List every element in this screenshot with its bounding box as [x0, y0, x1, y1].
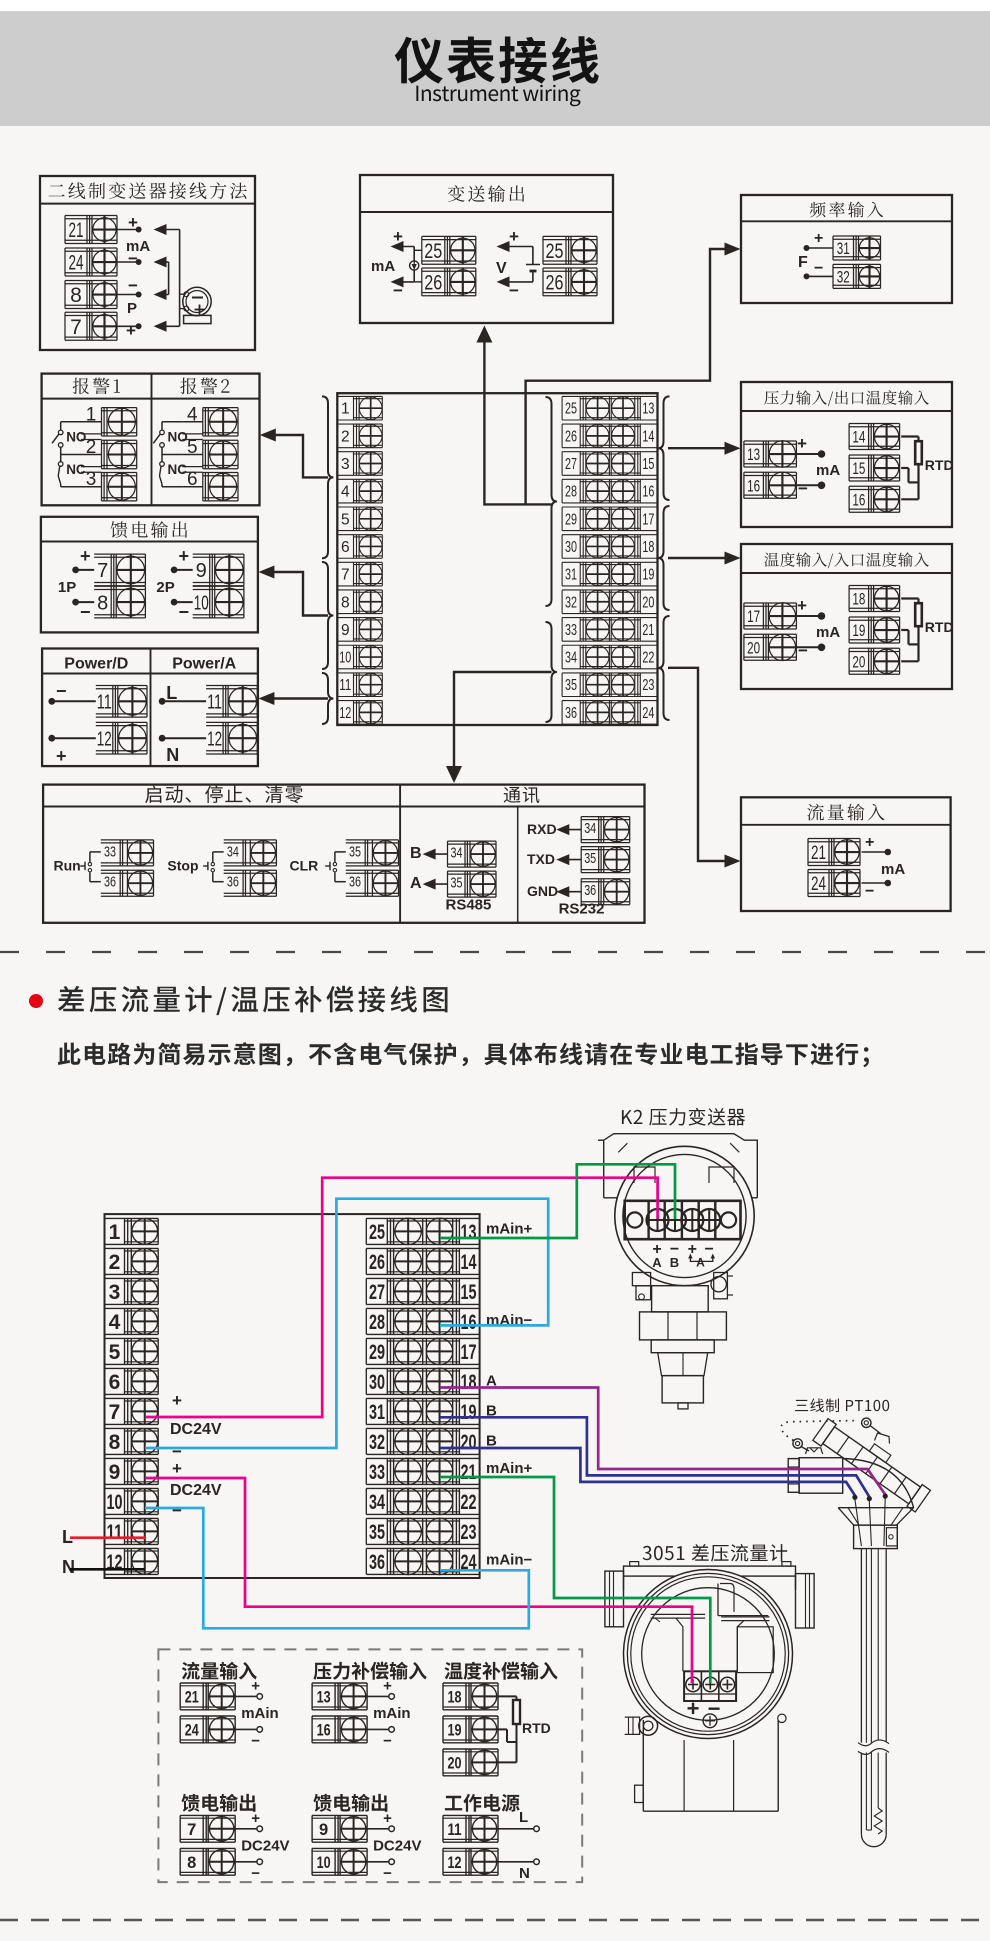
- svg-text:+: +: [172, 1459, 182, 1478]
- svg-text:P: P: [127, 300, 137, 317]
- svg-text:26: 26: [546, 271, 564, 294]
- svg-text:35: 35: [584, 851, 596, 867]
- svg-text:CLR: CLR: [290, 858, 319, 874]
- svg-text:NO: NO: [168, 430, 188, 445]
- svg-text:21: 21: [461, 1461, 477, 1484]
- svg-text:7: 7: [341, 567, 350, 584]
- svg-text:−: −: [56, 681, 67, 701]
- svg-text:+: +: [126, 321, 136, 340]
- svg-text:17: 17: [747, 607, 760, 626]
- svg-text:33: 33: [565, 622, 577, 639]
- svg-text:13: 13: [747, 445, 760, 464]
- svg-text:−: −: [383, 1865, 392, 1882]
- svg-text:N: N: [62, 1557, 75, 1577]
- svg-text:16: 16: [642, 484, 654, 501]
- svg-text:mAin−: mAin−: [486, 1552, 533, 1569]
- svg-text:31: 31: [565, 567, 577, 584]
- svg-text:mAin: mAin: [241, 1705, 279, 1722]
- svg-text:3: 3: [109, 1281, 121, 1304]
- svg-text:+: +: [179, 546, 190, 566]
- svg-text:28: 28: [565, 484, 577, 501]
- svg-text:12: 12: [207, 728, 222, 750]
- svg-text:12: 12: [448, 1854, 462, 1872]
- svg-text:−: −: [798, 479, 808, 498]
- svg-text:GND: GND: [527, 883, 558, 899]
- svg-text:8: 8: [97, 592, 108, 614]
- svg-text:10: 10: [107, 1491, 123, 1514]
- svg-text:16: 16: [747, 476, 760, 495]
- svg-text:23: 23: [461, 1521, 477, 1544]
- svg-text:mA: mA: [371, 258, 395, 275]
- svg-text:+: +: [865, 834, 874, 851]
- svg-text:21: 21: [642, 622, 654, 639]
- svg-text:mAin: mAin: [373, 1705, 411, 1722]
- svg-text:24: 24: [811, 874, 826, 895]
- svg-text:33: 33: [104, 844, 116, 860]
- svg-text:29: 29: [369, 1341, 385, 1364]
- svg-text:8: 8: [109, 1431, 121, 1454]
- svg-text:6: 6: [109, 1371, 121, 1394]
- svg-text:NC: NC: [66, 462, 86, 477]
- svg-text:31: 31: [837, 239, 850, 258]
- svg-text:+: +: [383, 1810, 392, 1827]
- svg-text:2: 2: [86, 437, 97, 458]
- svg-text:14: 14: [852, 428, 865, 447]
- svg-text:8: 8: [341, 594, 350, 611]
- svg-text:L: L: [166, 683, 177, 703]
- svg-text:DC24V: DC24V: [241, 1837, 289, 1854]
- svg-text:20: 20: [852, 652, 865, 671]
- svg-text:B: B: [670, 1255, 679, 1270]
- svg-text:mA: mA: [816, 462, 840, 479]
- svg-text:−: −: [251, 1865, 260, 1882]
- svg-text:DC24V: DC24V: [170, 1421, 222, 1438]
- svg-text:21: 21: [185, 1688, 199, 1706]
- svg-text:DC24V: DC24V: [373, 1837, 421, 1854]
- svg-text:TXD: TXD: [527, 851, 555, 867]
- svg-text:A: A: [410, 875, 422, 892]
- svg-text:21: 21: [811, 843, 826, 864]
- svg-text:12: 12: [339, 705, 351, 722]
- svg-text:15: 15: [852, 459, 865, 478]
- svg-text:NO: NO: [66, 430, 86, 445]
- svg-text:24: 24: [642, 705, 654, 722]
- svg-text:7: 7: [97, 560, 108, 582]
- svg-text:−: −: [80, 602, 91, 622]
- svg-text:mAin+: mAin+: [486, 1460, 533, 1477]
- svg-text:26: 26: [424, 271, 442, 294]
- svg-text:1: 1: [86, 404, 97, 425]
- svg-text:25: 25: [565, 401, 577, 418]
- svg-text:29: 29: [565, 511, 577, 528]
- svg-text:10: 10: [194, 592, 209, 614]
- svg-text:−: −: [251, 1732, 260, 1749]
- svg-text:+: +: [251, 1677, 260, 1694]
- svg-text:11: 11: [97, 692, 112, 714]
- svg-text:A: A: [696, 1256, 705, 1270]
- svg-text:mA: mA: [816, 624, 840, 641]
- svg-text:Power/D: Power/D: [64, 656, 128, 673]
- svg-text:DC24V: DC24V: [170, 1482, 222, 1499]
- svg-text:RTD: RTD: [522, 1720, 551, 1736]
- svg-text:13: 13: [317, 1688, 331, 1706]
- svg-text:14: 14: [461, 1251, 477, 1274]
- svg-text:25: 25: [546, 240, 564, 263]
- svg-text:+: +: [128, 213, 138, 232]
- svg-text:32: 32: [565, 594, 577, 611]
- svg-text:10: 10: [317, 1854, 331, 1872]
- svg-text:9: 9: [196, 560, 207, 582]
- svg-text:+: +: [814, 230, 823, 247]
- svg-text:9: 9: [109, 1461, 121, 1484]
- svg-text:23: 23: [642, 677, 654, 694]
- svg-text:26: 26: [565, 428, 577, 445]
- svg-text:26: 26: [369, 1251, 385, 1274]
- svg-text:N: N: [166, 745, 179, 765]
- svg-text:N: N: [519, 1865, 530, 1882]
- svg-text:9: 9: [319, 1821, 328, 1839]
- svg-text:8: 8: [70, 284, 82, 307]
- svg-text:3: 3: [86, 469, 97, 490]
- svg-text:11: 11: [339, 677, 351, 694]
- svg-text:+: +: [383, 1677, 392, 1694]
- svg-text:+: +: [687, 1696, 700, 1721]
- svg-text:36: 36: [349, 875, 361, 891]
- svg-text:33: 33: [369, 1461, 385, 1484]
- svg-text:−: −: [172, 1501, 182, 1520]
- svg-text:RS485: RS485: [446, 897, 492, 914]
- svg-text:RXD: RXD: [527, 821, 557, 837]
- svg-text:L: L: [519, 1809, 528, 1826]
- svg-text:7: 7: [70, 316, 82, 339]
- svg-text:35: 35: [565, 677, 577, 694]
- svg-text:15: 15: [461, 1281, 477, 1304]
- svg-text:27: 27: [565, 456, 577, 473]
- svg-text:34: 34: [565, 650, 577, 667]
- svg-text:30: 30: [565, 539, 577, 556]
- svg-text:+: +: [797, 596, 807, 615]
- svg-text:+: +: [509, 227, 519, 246]
- svg-text:36: 36: [565, 705, 577, 722]
- svg-text:18: 18: [448, 1688, 462, 1706]
- svg-text:36: 36: [584, 883, 596, 899]
- svg-text:mA: mA: [881, 861, 905, 878]
- svg-text:Stop: Stop: [167, 858, 198, 874]
- svg-text:RTD: RTD: [925, 619, 954, 635]
- svg-text:22: 22: [461, 1491, 477, 1514]
- svg-text:20: 20: [747, 638, 760, 657]
- svg-text:+: +: [251, 1810, 260, 1827]
- svg-text:20: 20: [642, 594, 654, 611]
- svg-text:5: 5: [109, 1341, 121, 1364]
- svg-text:1: 1: [341, 401, 350, 418]
- svg-text:9: 9: [341, 622, 350, 639]
- svg-text:Power/A: Power/A: [172, 656, 236, 673]
- svg-text:19: 19: [852, 621, 865, 640]
- svg-text:+: +: [797, 434, 807, 453]
- svg-text:34: 34: [227, 844, 239, 860]
- svg-text:34: 34: [369, 1491, 385, 1514]
- svg-text:−: −: [128, 276, 138, 295]
- svg-text:25: 25: [424, 240, 442, 263]
- svg-text:32: 32: [837, 268, 850, 287]
- svg-text:14: 14: [642, 428, 654, 445]
- svg-text:NC: NC: [168, 462, 188, 477]
- svg-text:31: 31: [369, 1401, 385, 1424]
- svg-text:−: −: [814, 260, 823, 277]
- svg-text:24: 24: [69, 252, 84, 275]
- svg-text:20: 20: [461, 1431, 477, 1454]
- svg-text:12: 12: [97, 728, 112, 750]
- svg-text:RTD: RTD: [925, 457, 954, 473]
- svg-text:7: 7: [109, 1401, 121, 1424]
- svg-text:Run: Run: [54, 858, 81, 874]
- svg-text:4: 4: [187, 404, 198, 425]
- svg-text:19: 19: [642, 567, 654, 584]
- svg-text:16: 16: [461, 1311, 477, 1334]
- svg-text:35: 35: [451, 876, 463, 892]
- svg-text:25: 25: [369, 1221, 385, 1244]
- svg-text:−: −: [865, 883, 874, 900]
- svg-text:35: 35: [349, 844, 361, 860]
- svg-text:7: 7: [187, 1821, 196, 1839]
- svg-text:RS232: RS232: [559, 901, 605, 918]
- svg-text:2P: 2P: [156, 579, 174, 596]
- svg-text:4: 4: [109, 1311, 121, 1334]
- svg-text:11: 11: [448, 1821, 462, 1839]
- svg-text:28: 28: [369, 1311, 385, 1334]
- svg-text:F: F: [798, 254, 808, 271]
- svg-text:−: −: [128, 249, 138, 268]
- svg-text:B: B: [410, 845, 422, 862]
- svg-text:17: 17: [642, 511, 654, 528]
- svg-text:13: 13: [642, 401, 654, 418]
- svg-text:34: 34: [451, 846, 463, 862]
- svg-text:18: 18: [642, 539, 654, 556]
- svg-text:19: 19: [448, 1721, 462, 1739]
- svg-text:27: 27: [369, 1281, 385, 1304]
- svg-text:19: 19: [461, 1401, 477, 1424]
- svg-text:34: 34: [584, 821, 596, 837]
- svg-text:16: 16: [317, 1721, 331, 1739]
- svg-text:2: 2: [341, 428, 350, 445]
- svg-text:−: −: [798, 641, 808, 660]
- svg-text:10: 10: [339, 650, 351, 667]
- svg-text:−: −: [179, 602, 190, 622]
- svg-text:11: 11: [107, 1521, 123, 1544]
- svg-text:18: 18: [852, 590, 865, 609]
- svg-text:−: −: [383, 1732, 392, 1749]
- svg-text:1P: 1P: [58, 579, 76, 596]
- svg-text:5: 5: [187, 437, 198, 458]
- svg-text:35: 35: [369, 1521, 385, 1544]
- svg-text:+: +: [80, 546, 91, 566]
- svg-text:13: 13: [461, 1221, 477, 1244]
- svg-text:36: 36: [369, 1551, 385, 1574]
- svg-text:36: 36: [227, 875, 239, 891]
- svg-text:8: 8: [187, 1854, 196, 1872]
- svg-text:21: 21: [69, 219, 84, 242]
- svg-text:A: A: [652, 1255, 662, 1270]
- svg-text:mAin+: mAin+: [486, 1220, 533, 1237]
- svg-text:16: 16: [852, 490, 865, 509]
- svg-text:32: 32: [369, 1431, 385, 1454]
- svg-text:11: 11: [207, 692, 222, 714]
- svg-text:4: 4: [341, 484, 350, 501]
- svg-text:6: 6: [187, 469, 198, 490]
- svg-text:20: 20: [448, 1754, 462, 1772]
- svg-text:+: +: [56, 746, 67, 766]
- svg-text:1: 1: [109, 1221, 121, 1244]
- svg-text:22: 22: [642, 650, 654, 667]
- svg-text:17: 17: [461, 1341, 477, 1364]
- svg-text:36: 36: [104, 875, 116, 891]
- svg-text:15: 15: [642, 456, 654, 473]
- svg-text:3: 3: [341, 456, 350, 473]
- svg-text:24: 24: [185, 1721, 200, 1739]
- svg-text:5: 5: [341, 511, 350, 528]
- svg-text:+: +: [172, 1391, 182, 1410]
- svg-text:18: 18: [461, 1371, 477, 1394]
- svg-text:30: 30: [369, 1371, 385, 1394]
- svg-text:2: 2: [109, 1251, 121, 1274]
- svg-text:V: V: [496, 260, 507, 277]
- svg-text:6: 6: [341, 539, 350, 556]
- svg-text:−: −: [509, 281, 519, 300]
